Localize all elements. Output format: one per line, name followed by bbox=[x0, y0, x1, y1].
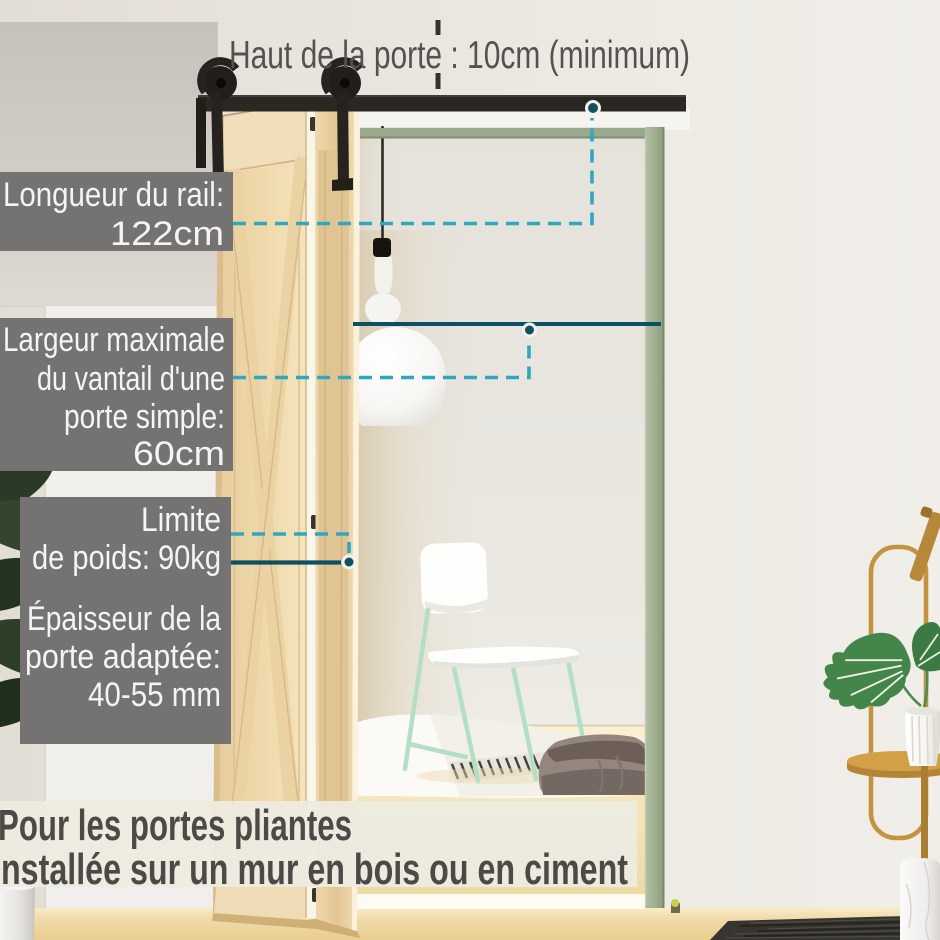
svg-text:de poids: 90kg: de poids: 90kg bbox=[32, 539, 221, 577]
svg-text:Haut de la porte : 10cm (minim: Haut de la porte : 10cm (minimum) bbox=[229, 34, 690, 77]
svg-text:40-55 mm: 40-55 mm bbox=[88, 676, 221, 714]
svg-text:122cm: 122cm bbox=[110, 215, 224, 253]
svg-text:Pour les portes pliantes: Pour les portes pliantes bbox=[0, 801, 352, 850]
svg-text:porte adaptée:: porte adaptée: bbox=[25, 638, 221, 676]
svg-text:porte simple:: porte simple: bbox=[64, 398, 225, 436]
svg-text:du vantail d'une: du vantail d'une bbox=[37, 360, 225, 398]
svg-text:Limite: Limite bbox=[141, 501, 221, 539]
svg-text:Épaisseur de la: Épaisseur de la bbox=[27, 600, 221, 638]
svg-text:Largeur maximale: Largeur maximale bbox=[3, 321, 225, 359]
svg-text:Longueur du rail:: Longueur du rail: bbox=[3, 176, 224, 214]
svg-text:installée sur un mur en bois o: installée sur un mur en bois ou en cimen… bbox=[0, 845, 628, 894]
svg-text:60cm: 60cm bbox=[133, 435, 225, 473]
